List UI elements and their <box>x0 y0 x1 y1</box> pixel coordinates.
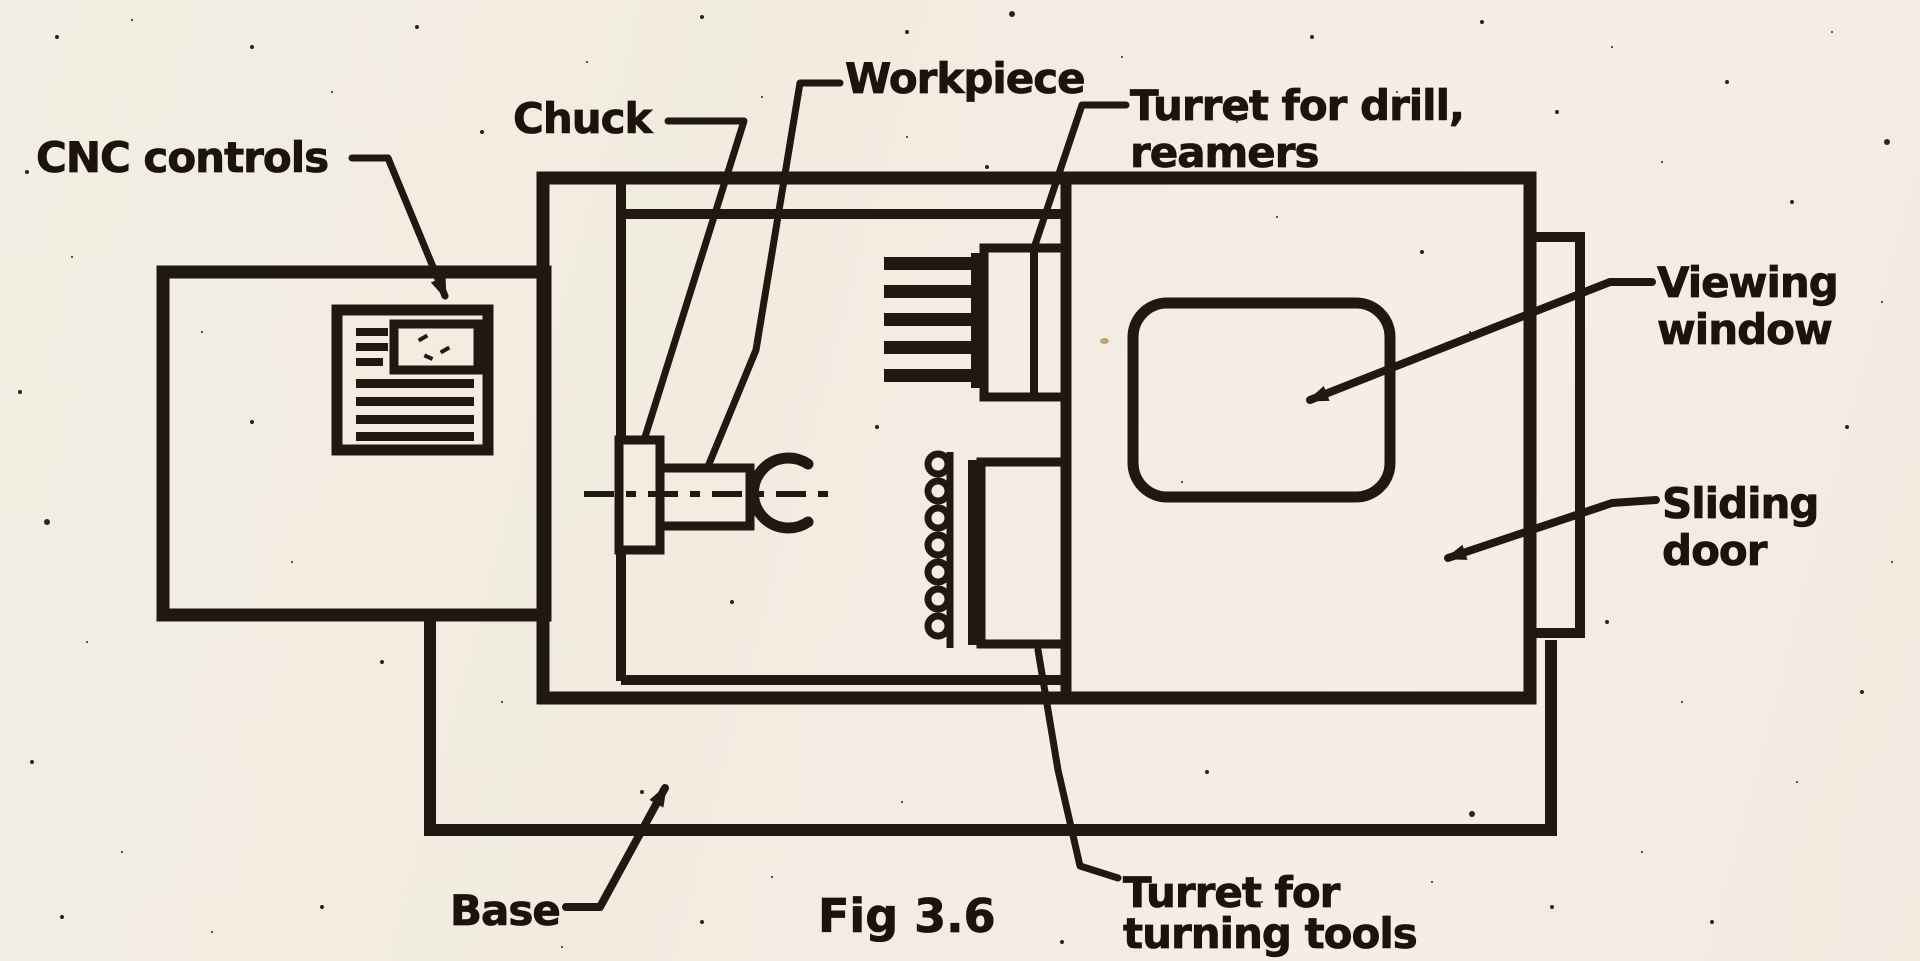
label-turning-turret-line2: turning tools <box>1123 909 1417 958</box>
label-drill-turret-line2: reamers <box>1130 128 1319 177</box>
cnc-lathe-diagram: CNC controls Chuck Workpiece Turret for … <box>0 0 1920 961</box>
label-sliding-door-line2: door <box>1662 526 1768 575</box>
label-workpiece: Workpiece <box>845 54 1085 103</box>
label-viewing-window-line2: window <box>1657 305 1832 354</box>
sliding-door-panel <box>1072 185 1524 691</box>
label-drill-turret-line1: Turret for drill, <box>1130 81 1464 130</box>
turning-turret-tools <box>928 452 950 648</box>
turning-turret-body <box>981 462 1066 644</box>
figure-caption: Fig 3.6 <box>818 889 996 943</box>
control-panel-screen <box>394 324 478 370</box>
label-base: Base <box>450 886 560 935</box>
leader-chuck <box>645 121 744 437</box>
leader-base <box>566 788 665 907</box>
label-viewing-window-line1: Viewing <box>1657 258 1838 307</box>
drill-turret <box>884 248 1066 397</box>
drill-turret-body <box>984 248 1066 397</box>
leader-workpiece <box>709 83 840 464</box>
label-chuck: Chuck <box>513 94 654 143</box>
turning-turret <box>928 452 1066 648</box>
cnc-control-panel <box>337 310 488 450</box>
drill-turret-tools <box>884 253 984 388</box>
label-cnc-controls: CNC controls <box>36 133 328 182</box>
screen-hatch-icon <box>418 334 451 361</box>
control-panel-buttons <box>356 328 474 441</box>
label-sliding-door-line1: Sliding <box>1662 479 1818 528</box>
scanned-figure-page: CNC controls Chuck Workpiece Turret for … <box>0 0 1920 961</box>
